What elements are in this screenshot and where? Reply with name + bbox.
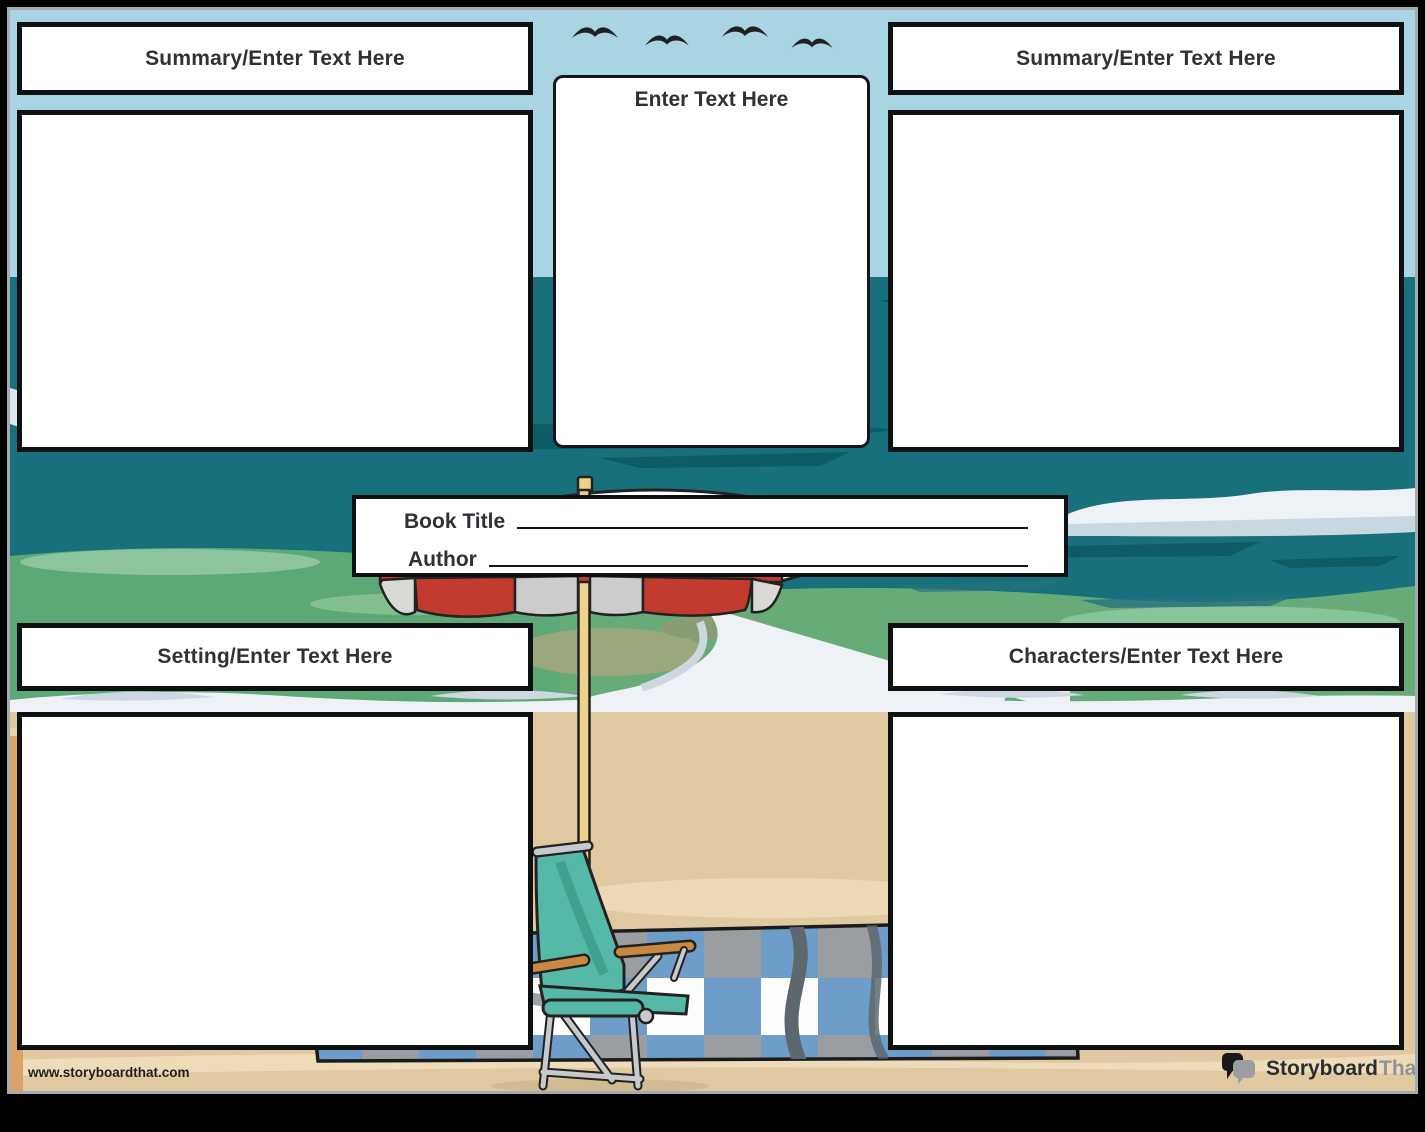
storyboardthat-logo[interactable]: StoryboardThat xyxy=(1222,1052,1418,1086)
characters-header[interactable]: Characters/Enter Text Here xyxy=(888,623,1404,691)
website-url[interactable]: www.storyboardthat.com xyxy=(28,1065,190,1080)
setting-header[interactable]: Setting/Enter Text Here xyxy=(17,623,533,691)
summary-right-label: Summary/Enter Text Here xyxy=(1016,47,1276,71)
setting-label: Setting/Enter Text Here xyxy=(157,645,392,669)
book-title-label: Book Title xyxy=(404,510,505,534)
summary-left-label: Summary/Enter Text Here xyxy=(145,47,405,71)
setting-text-area[interactable] xyxy=(17,712,533,1050)
characters-text-area[interactable] xyxy=(888,712,1404,1050)
author-line[interactable] xyxy=(489,564,1028,567)
summary-right-text-area[interactable] xyxy=(888,110,1404,452)
logo-text-that: That xyxy=(1379,1057,1418,1081)
characters-label: Characters/Enter Text Here xyxy=(1009,645,1283,669)
summary-right-header[interactable]: Summary/Enter Text Here xyxy=(888,22,1404,95)
worksheet-canvas: Summary/Enter Text Here Enter Text Here … xyxy=(7,7,1418,1094)
worksheet-page: Summary/Enter Text Here Enter Text Here … xyxy=(0,0,1425,1132)
author-label: Author xyxy=(408,548,477,572)
book-title-line[interactable] xyxy=(517,526,1028,529)
center-text-cell[interactable]: Enter Text Here xyxy=(553,75,870,448)
logo-text-storyboard: Storyboard xyxy=(1266,1057,1378,1081)
summary-left-text-area[interactable] xyxy=(17,110,533,452)
center-cell-label: Enter Text Here xyxy=(635,88,789,112)
summary-left-header[interactable]: Summary/Enter Text Here xyxy=(17,22,533,95)
speech-bubbles-icon xyxy=(1222,1052,1258,1086)
book-title-author-box[interactable]: Book Title Author xyxy=(352,495,1068,577)
